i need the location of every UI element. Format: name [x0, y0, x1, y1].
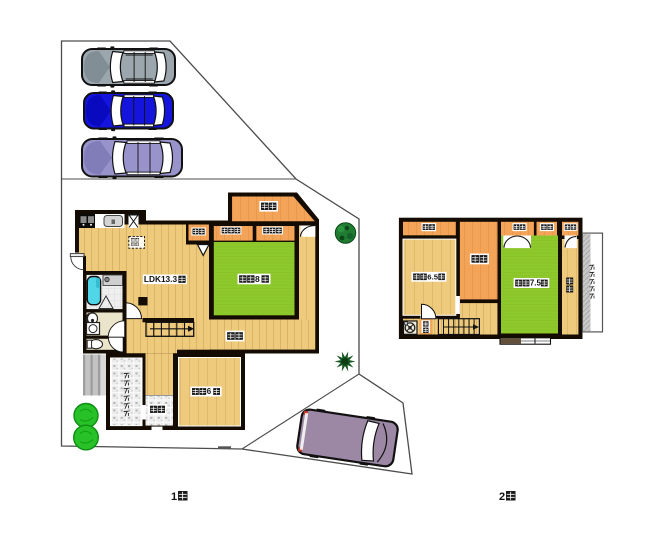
svg-text:1: 1	[171, 491, 177, 503]
svg-text:2: 2	[499, 491, 505, 503]
svg-text:LDK13.3: LDK13.3	[144, 274, 178, 284]
svg-text:6: 6	[207, 387, 212, 396]
svg-text:8: 8	[255, 274, 260, 284]
svg-text:7.5: 7.5	[530, 279, 542, 288]
svg-text:6.5: 6.5	[427, 272, 438, 281]
